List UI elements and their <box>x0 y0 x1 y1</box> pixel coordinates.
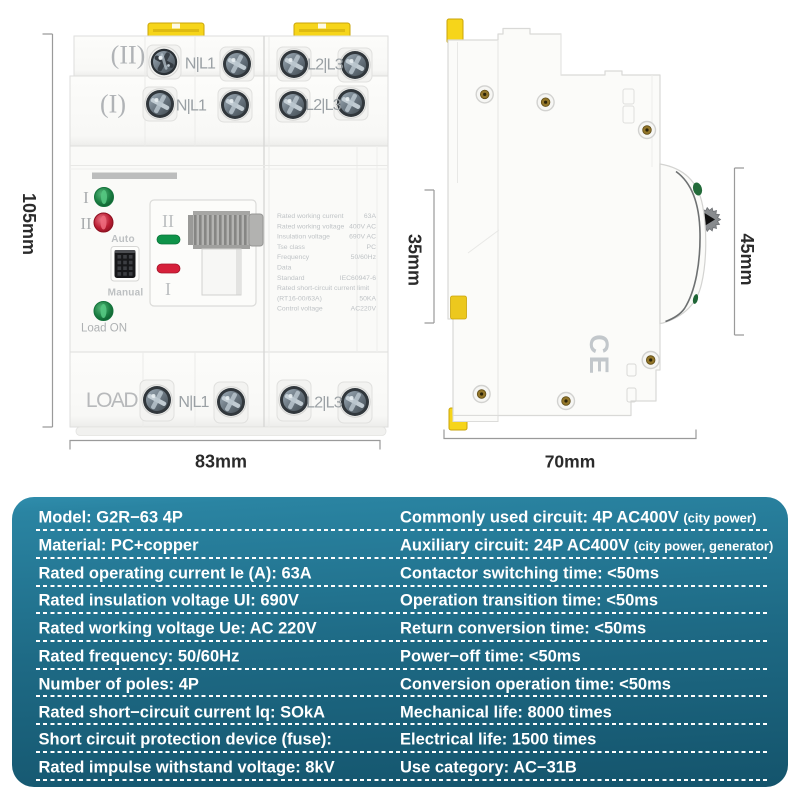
svg-text:Rated short-circuit current li: Rated short-circuit current limit <box>277 285 369 292</box>
svg-text:II: II <box>162 211 174 231</box>
svg-text:PC: PC <box>367 244 377 251</box>
svg-text:AC220V: AC220V <box>351 306 377 313</box>
svg-text:Auto: Auto <box>111 234 135 245</box>
svg-text:Standard: Standard <box>277 275 305 282</box>
svg-text:IEC60947-6: IEC60947-6 <box>340 275 376 282</box>
svg-text:(II): (II) <box>111 41 146 70</box>
svg-text:70mm: 70mm <box>545 452 596 472</box>
svg-text:83mm: 83mm <box>195 452 247 472</box>
svg-text:400V AC: 400V AC <box>349 223 376 230</box>
svg-text:N|L1: N|L1 <box>176 98 207 115</box>
svg-text:Manual: Manual <box>108 288 144 299</box>
svg-text:63A: 63A <box>364 213 377 220</box>
svg-text:I: I <box>83 188 89 207</box>
svg-text:N|L1: N|L1 <box>185 56 216 73</box>
svg-text:Rated working current: Rated working current <box>277 213 344 220</box>
svg-text:Control voltage: Control voltage <box>277 306 323 313</box>
svg-text:690V AC: 690V AC <box>349 234 376 241</box>
svg-text:LOAD: LOAD <box>86 389 139 412</box>
svg-text:35mm: 35mm <box>405 234 425 286</box>
svg-text:50KA: 50KA <box>359 295 376 302</box>
svg-text:I: I <box>165 279 171 299</box>
svg-text:CE: CE <box>584 334 614 376</box>
svg-text:Rated working voltage: Rated working voltage <box>277 223 344 230</box>
svg-text:45mm: 45mm <box>737 233 757 285</box>
svg-text:Data: Data <box>277 265 292 272</box>
svg-text:Load ON: Load ON <box>81 323 127 335</box>
svg-text:50/60Hz: 50/60Hz <box>351 254 377 261</box>
svg-text:L2|L3: L2|L3 <box>306 395 343 412</box>
svg-text:L2|L3: L2|L3 <box>305 97 342 114</box>
svg-text:(I): (I) <box>100 90 126 119</box>
svg-text:Insulation voltage: Insulation voltage <box>277 234 330 241</box>
svg-text:N|L1: N|L1 <box>178 394 209 411</box>
svg-text:Tse class: Tse class <box>277 244 306 251</box>
svg-text:105mm: 105mm <box>19 193 39 255</box>
svg-text:(RT16-00/63A): (RT16-00/63A) <box>277 295 322 302</box>
svg-text:II: II <box>80 214 92 233</box>
svg-text:L2|L3: L2|L3 <box>307 57 344 74</box>
svg-text:Frequency: Frequency <box>277 254 310 261</box>
